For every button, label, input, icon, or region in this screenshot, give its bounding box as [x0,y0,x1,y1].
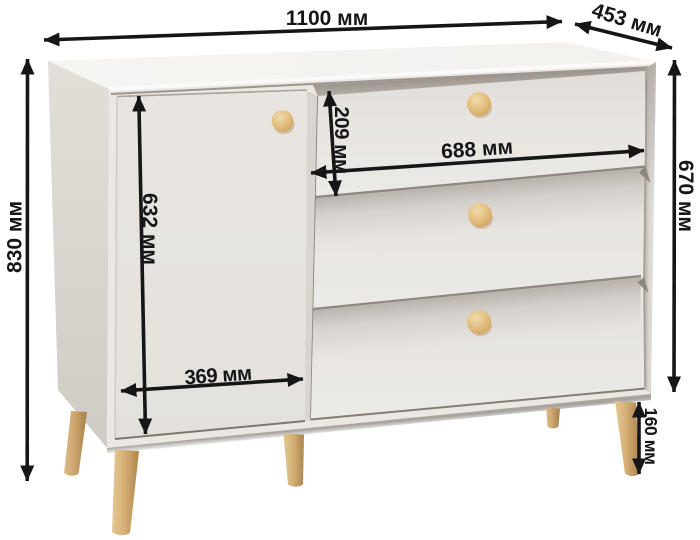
svg-text:632 мм: 632 мм [138,193,161,265]
svg-text:670 мм: 670 мм [674,160,697,232]
svg-text:1100 мм: 1100 мм [286,7,368,30]
svg-text:830 мм: 830 мм [4,201,27,273]
svg-text:160 мм: 160 мм [641,408,661,465]
svg-text:369 мм: 369 мм [184,362,253,390]
svg-text:209 мм: 209 мм [330,106,353,173]
